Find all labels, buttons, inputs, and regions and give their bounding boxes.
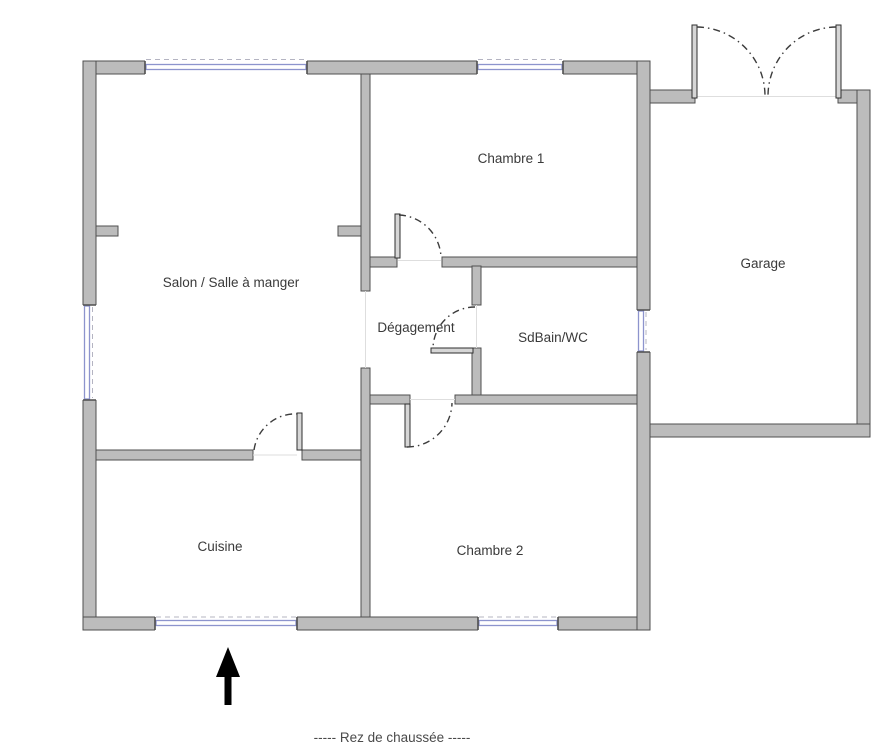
window-glass [146,65,306,70]
north-arrow-shaft [225,675,232,705]
north-arrow-head [216,647,240,677]
window-chambre1 [477,60,563,76]
door-leaf [395,214,400,258]
wall-segment [857,90,870,437]
window-salon-left [82,305,97,400]
wall-segment [361,368,370,617]
interior-walls [96,74,637,617]
window-glass [478,65,562,70]
wall-segment [96,226,118,236]
floorplan-canvas: Salon / Salle à manger Chambre 1 Garage … [0,0,891,747]
wall-segment [472,348,481,395]
room-label-chambre1: Chambre 1 [478,151,545,166]
window-sdbain-right [636,310,651,352]
wall-segment [370,257,397,267]
wall-segment [455,395,637,404]
door-chambre2 [405,403,452,447]
room-label-sdbain: SdBain/WC [518,330,588,345]
wall-segment [361,74,370,291]
window-glass [85,306,90,399]
window-glass [156,621,296,626]
window-glass [639,311,644,351]
door-swing-arc [768,27,836,96]
door-swing-arc [399,215,441,257]
door-swing-arc [697,27,765,96]
door-leaf [692,25,697,98]
door-leaf [836,25,841,98]
window-cuisine [155,616,297,631]
room-label-chambre2: Chambre 2 [457,543,524,558]
room-label-garage: Garage [740,256,785,271]
wall-segment [442,257,637,267]
door-leaf [405,404,410,447]
window-glass [479,621,557,626]
wall-segment [370,395,410,404]
door-cuisine [254,413,302,450]
room-label-salon: Salon / Salle à manger [163,275,300,290]
door-chambre1 [395,214,441,258]
door-leaf [431,348,473,353]
wall-segment [302,450,361,460]
door-garage-double [692,25,841,98]
window-salon [145,60,307,76]
wall-segment [96,450,253,460]
floor-caption: ----- Rez de chaussée ----- [314,730,471,745]
floorplan-svg: Salon / Salle à manger Chambre 1 Garage … [0,0,891,747]
room-label-cuisine: Cuisine [197,539,242,554]
room-label-degagement: Dégagement [377,320,455,335]
north-arrow-icon [216,647,240,705]
window-chambre2 [478,616,558,631]
wall-segment [472,266,481,305]
wall-segment [650,424,870,437]
wall-segment [650,90,695,103]
wall-segment [338,226,361,236]
door-leaf [297,413,302,450]
door-swing-arc [254,414,299,450]
door-swing-arc [407,403,452,447]
